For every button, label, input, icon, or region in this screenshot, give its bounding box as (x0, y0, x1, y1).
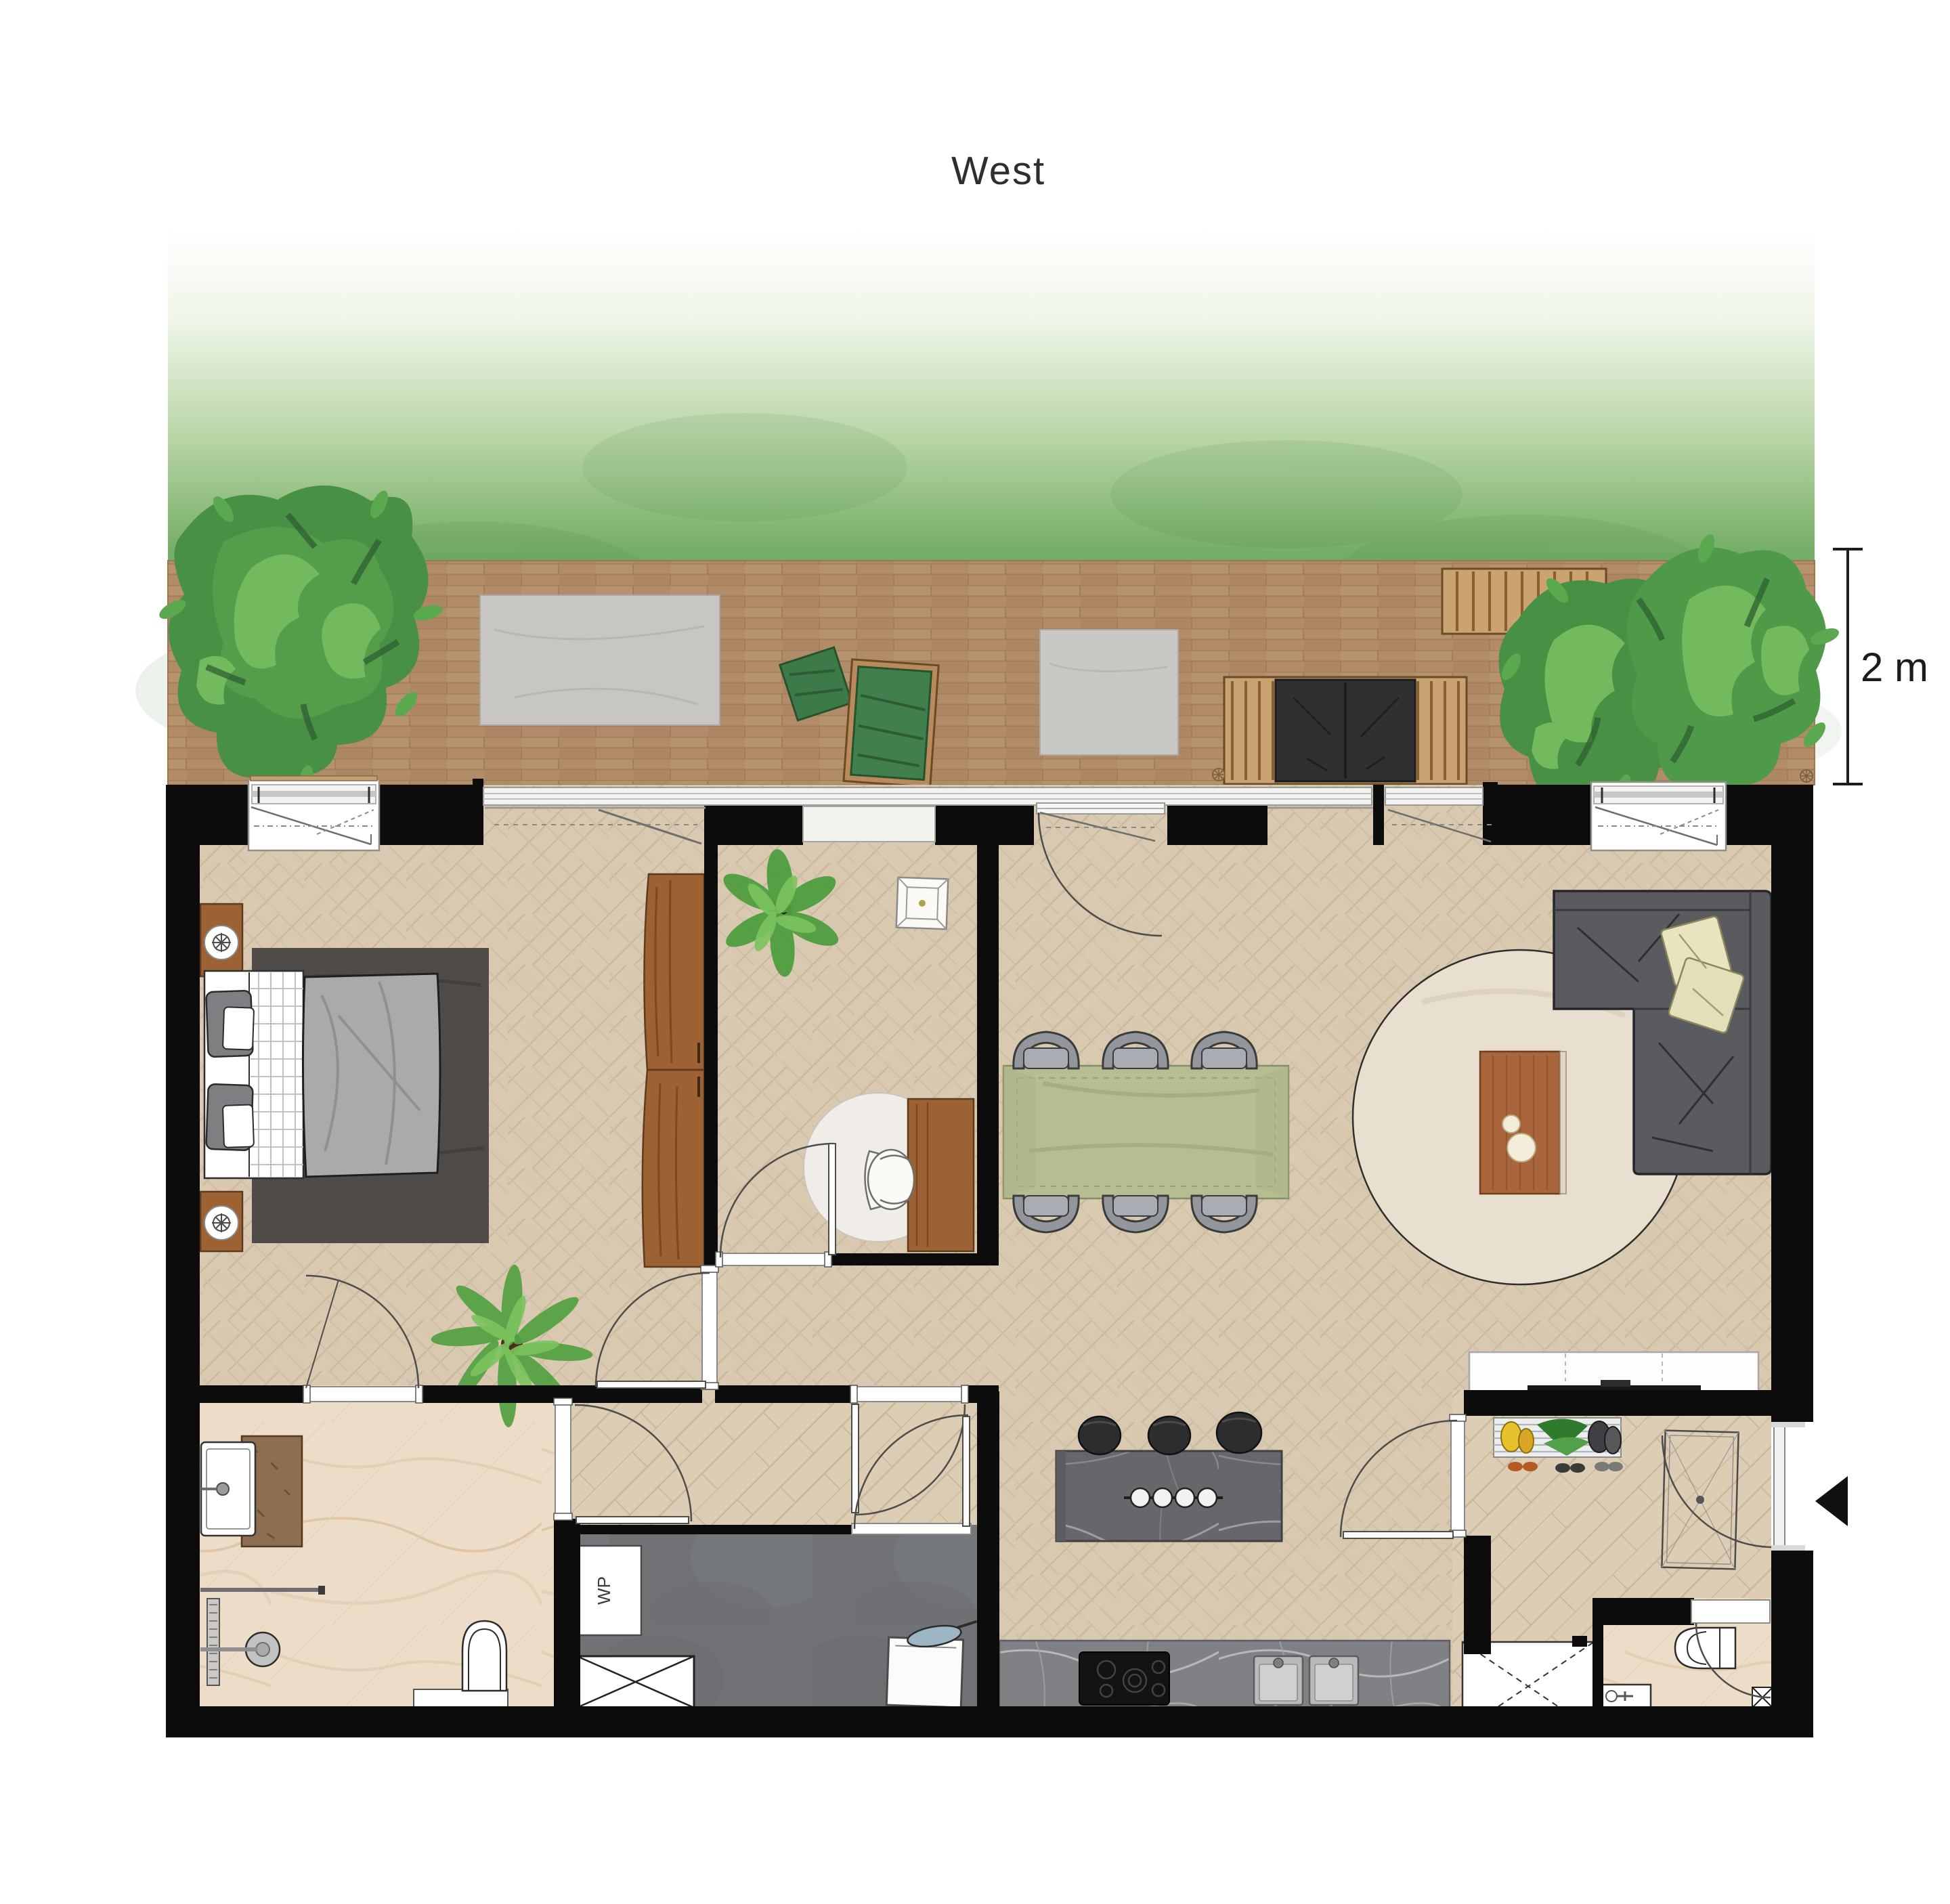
svg-text:West: West (951, 149, 1045, 193)
svg-text:WP: WP (594, 1576, 614, 1605)
svg-text:2 m: 2 m (1861, 645, 1928, 690)
